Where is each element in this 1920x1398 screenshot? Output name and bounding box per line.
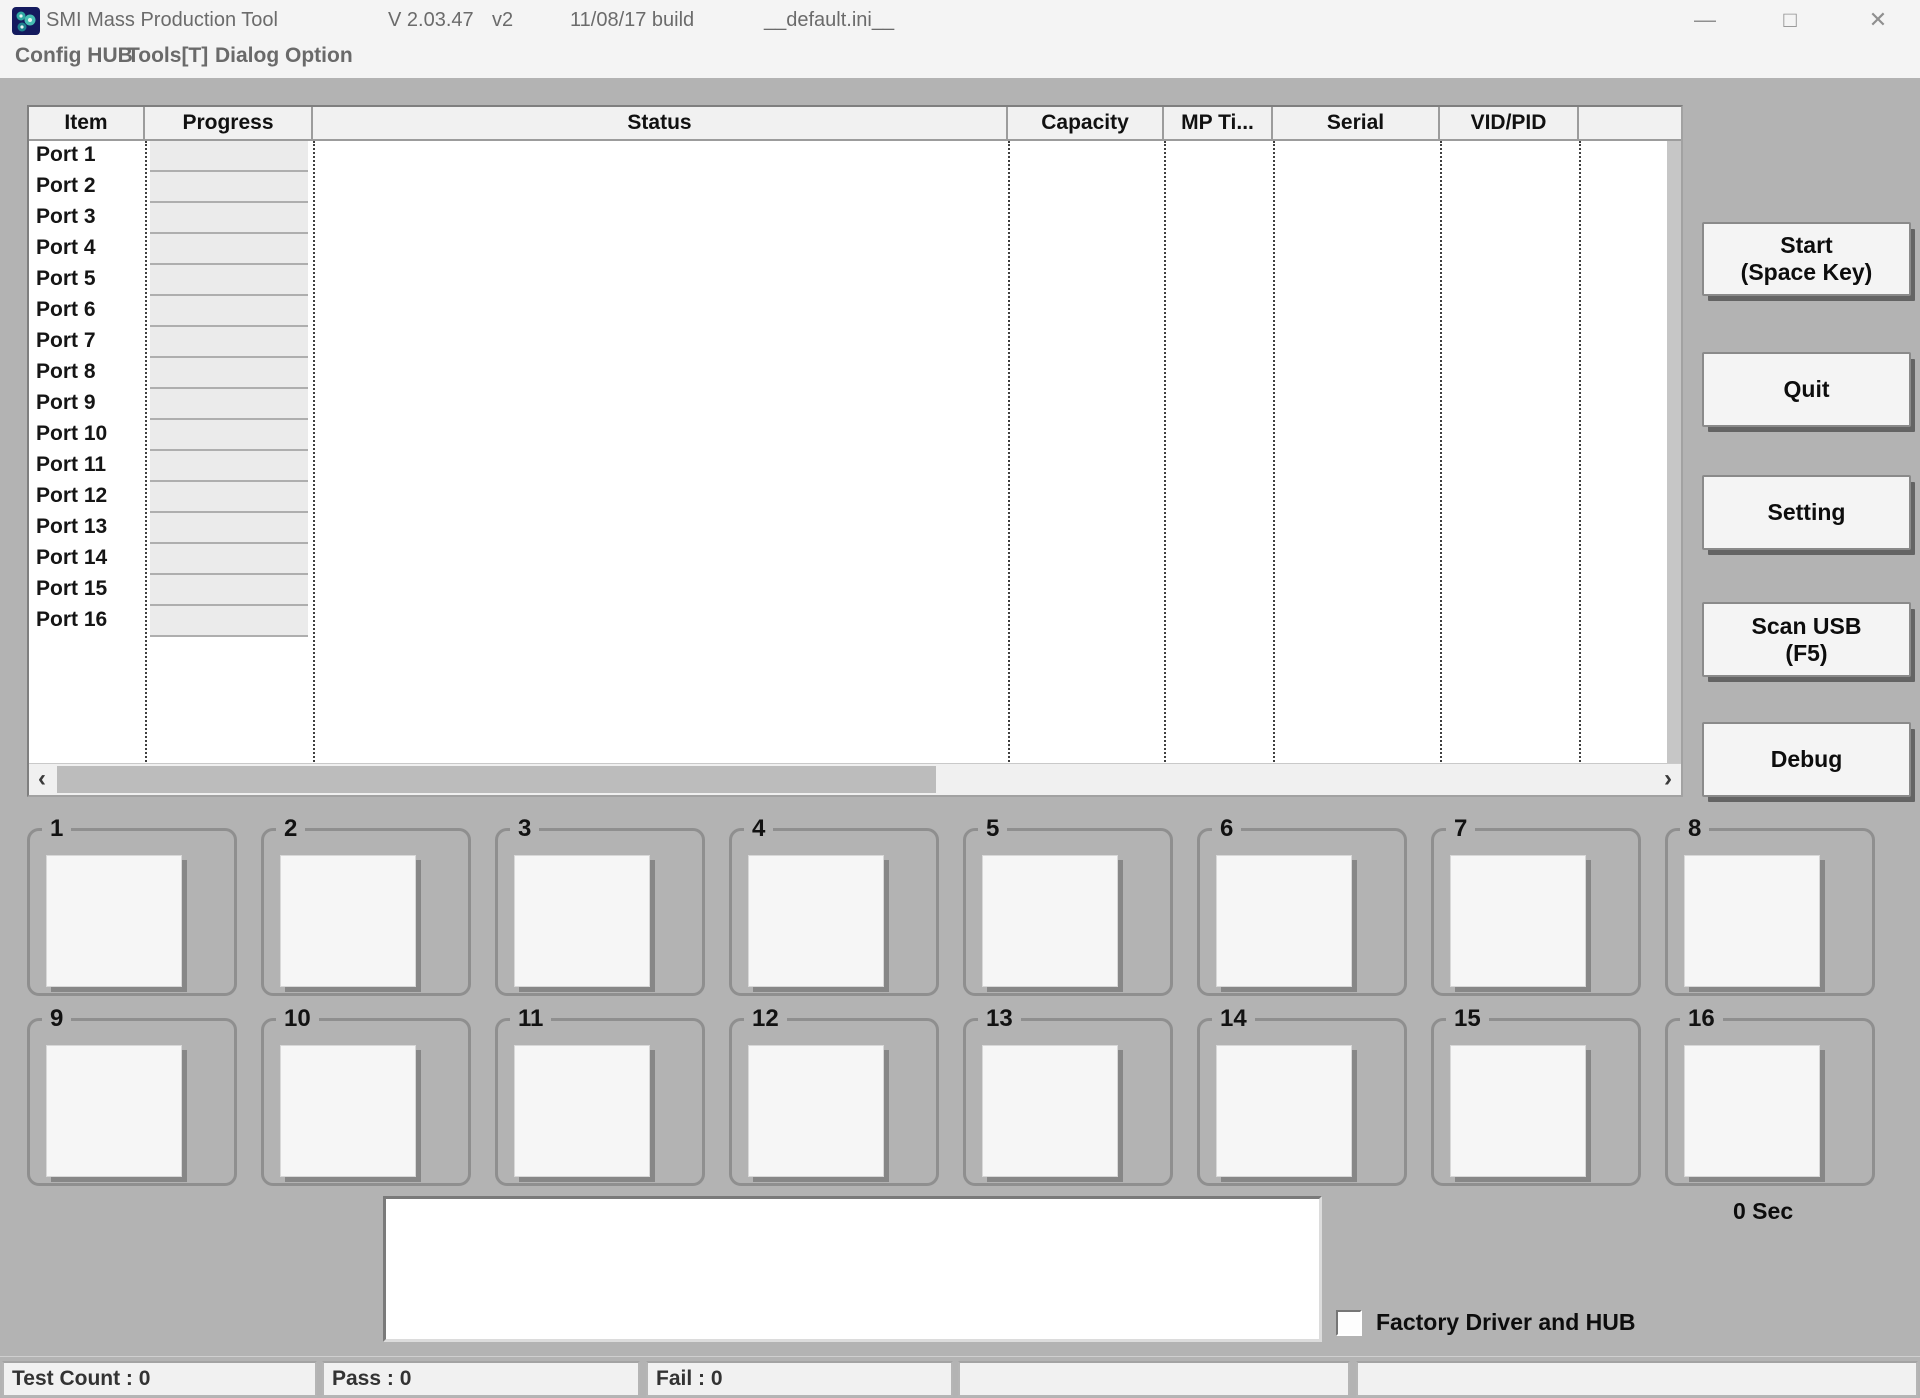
status-panel-5	[1356, 1361, 1918, 1397]
column-separator	[1579, 141, 1581, 765]
port-label: Port 7	[36, 329, 96, 353]
column-header-serial[interactable]: Serial	[1273, 107, 1440, 141]
port-label: Port 14	[36, 546, 107, 570]
scroll-left-icon: ‹	[38, 765, 46, 792]
app-version: V 2.03.47	[388, 9, 474, 32]
table-row-port-3[interactable]: Port 3	[29, 203, 1681, 234]
column-separator	[1273, 141, 1275, 765]
setting-button[interactable]: Setting	[1702, 475, 1911, 550]
port-label: Port 11	[36, 453, 106, 477]
port-status-table: Item Progress Status Capacity MP Ti... S…	[27, 105, 1683, 797]
port-status-square	[280, 1045, 416, 1177]
setting-button-label: Setting	[1768, 499, 1846, 526]
port-status-square	[1684, 1045, 1820, 1177]
menu-tools[interactable]: Tools[T]	[127, 44, 208, 68]
table-row-port-9[interactable]: Port 9	[29, 389, 1681, 420]
port-box-number: 13	[978, 1005, 1021, 1033]
column-separator	[1440, 141, 1442, 765]
column-separator	[313, 141, 315, 765]
progress-cell	[150, 420, 308, 451]
status-test-count: Test Count : 0	[2, 1361, 317, 1397]
factory-driver-checkbox[interactable]	[1336, 1310, 1362, 1336]
table-row-port-8[interactable]: Port 8	[29, 358, 1681, 389]
status-bar: Test Count : 0 Pass : 0 Fail : 0	[0, 1356, 1920, 1398]
port-box-number: 8	[1680, 815, 1709, 843]
scroll-right-button[interactable]: ›	[1655, 764, 1681, 795]
port-box-number: 10	[276, 1005, 319, 1033]
port-box-number: 1	[42, 815, 71, 843]
port-status-square	[1450, 1045, 1586, 1177]
table-row-port-11[interactable]: Port 11	[29, 451, 1681, 482]
window-chrome: SMI Mass Production Tool V 2.03.47 v2 11…	[0, 0, 1920, 78]
elapsed-time: 0 Sec	[1733, 1198, 1793, 1225]
table-row-port-14[interactable]: Port 14	[29, 544, 1681, 575]
port-box-7: 7	[1431, 828, 1641, 996]
port-status-square	[748, 1045, 884, 1177]
port-box-number: 11	[510, 1005, 551, 1033]
port-box-4: 4	[729, 828, 939, 996]
port-box-number: 5	[978, 815, 1007, 843]
window-title: SMI Mass Production Tool	[46, 9, 278, 32]
close-button[interactable]: ✕	[1856, 2, 1900, 38]
progress-cell	[150, 172, 308, 203]
table-row-port-10[interactable]: Port 10	[29, 420, 1681, 451]
menu-config-hub[interactable]: Config HUB	[15, 44, 133, 68]
quit-button[interactable]: Quit	[1702, 352, 1911, 427]
progress-cell	[150, 327, 308, 358]
progress-cell	[150, 482, 308, 513]
port-status-square	[1216, 1045, 1352, 1177]
port-box-number: 4	[744, 815, 773, 843]
port-box-6: 6	[1197, 828, 1407, 996]
port-box-1: 1	[27, 828, 237, 996]
column-header-mp-time[interactable]: MP Ti...	[1164, 107, 1273, 141]
column-separator	[145, 141, 147, 765]
start-button-label: Start	[1780, 232, 1832, 259]
app-icon	[12, 7, 40, 35]
port-status-square	[748, 855, 884, 987]
progress-cell	[150, 513, 308, 544]
port-box-number: 9	[42, 1005, 71, 1033]
port-label: Port 1	[36, 143, 96, 167]
port-box-9: 9	[27, 1018, 237, 1186]
column-header-status[interactable]: Status	[313, 107, 1008, 141]
port-label: Port 13	[36, 515, 107, 539]
port-box-5: 5	[963, 828, 1173, 996]
scrollbar-thumb[interactable]	[57, 766, 936, 793]
port-label: Port 8	[36, 360, 96, 384]
scroll-right-icon: ›	[1664, 765, 1672, 792]
loaded-ini-file: __default.ini__	[764, 9, 894, 32]
progress-cell	[150, 296, 308, 327]
horizontal-scrollbar[interactable]: ‹ ›	[29, 763, 1681, 795]
table-row-port-6[interactable]: Port 6	[29, 296, 1681, 327]
quit-button-label: Quit	[1784, 376, 1830, 403]
minimize-button[interactable]: —	[1683, 2, 1727, 38]
port-box-10: 10	[261, 1018, 471, 1186]
column-header-vid-pid[interactable]: VID/PID	[1440, 107, 1579, 141]
scan-usb-button-sublabel: (F5)	[1785, 640, 1827, 667]
debug-button[interactable]: Debug	[1702, 722, 1911, 797]
progress-cell	[150, 234, 308, 265]
progress-cell	[150, 606, 308, 637]
close-icon: ✕	[1869, 7, 1887, 32]
port-box-12: 12	[729, 1018, 939, 1186]
port-status-square	[1684, 855, 1820, 987]
port-status-square	[514, 855, 650, 987]
port-status-square	[46, 1045, 182, 1177]
port-box-number: 15	[1446, 1005, 1489, 1033]
port-box-14: 14	[1197, 1018, 1407, 1186]
port-box-number: 16	[1680, 1005, 1723, 1033]
port-status-square	[514, 1045, 650, 1177]
scroll-left-button[interactable]: ‹	[29, 764, 55, 795]
progress-cell	[150, 141, 308, 172]
progress-cell	[150, 389, 308, 420]
port-box-number: 7	[1446, 815, 1475, 843]
table-row-port-5[interactable]: Port 5	[29, 265, 1681, 296]
port-label: Port 2	[36, 174, 96, 198]
port-label: Port 4	[36, 236, 96, 260]
column-separator	[1164, 141, 1166, 765]
message-log-box	[383, 1196, 1322, 1342]
status-panel-4	[958, 1361, 1350, 1397]
menu-dialog-option[interactable]: Dialog Option	[215, 44, 353, 68]
column-separator	[1008, 141, 1010, 765]
port-box-11: 11	[495, 1018, 705, 1186]
port-status-square	[982, 855, 1118, 987]
port-label: Port 15	[36, 577, 107, 601]
port-box-8: 8	[1665, 828, 1875, 996]
scan-usb-button-label: Scan USB	[1752, 613, 1862, 640]
status-fail-count: Fail : 0	[646, 1361, 953, 1397]
status-pass-count: Pass : 0	[322, 1361, 640, 1397]
port-box-15: 15	[1431, 1018, 1641, 1186]
column-header-capacity[interactable]: Capacity	[1008, 107, 1164, 141]
progress-cell	[150, 203, 308, 234]
progress-cell	[150, 451, 308, 482]
table-row-port-12[interactable]: Port 12	[29, 482, 1681, 513]
port-status-square	[46, 855, 182, 987]
start-button[interactable]: Start (Space Key)	[1702, 222, 1911, 296]
port-box-number: 6	[1212, 815, 1241, 843]
port-box-2: 2	[261, 828, 471, 996]
app-build: 11/08/17 build	[570, 9, 694, 32]
table-row-port-16[interactable]: Port 16	[29, 606, 1681, 637]
table-row-port-15[interactable]: Port 15	[29, 575, 1681, 606]
maximize-icon: □	[1783, 7, 1796, 32]
port-box-number: 3	[510, 815, 539, 843]
port-box-number: 2	[276, 815, 305, 843]
port-label: Port 5	[36, 267, 96, 291]
progress-cell	[150, 544, 308, 575]
port-status-square	[982, 1045, 1118, 1177]
progress-cell	[150, 358, 308, 389]
table-header-row: Item Progress Status Capacity MP Ti... S…	[29, 107, 1681, 141]
table-row-port-1[interactable]: Port 1	[29, 141, 1681, 172]
maximize-button[interactable]: □	[1768, 2, 1812, 38]
scan-usb-button[interactable]: Scan USB (F5)	[1702, 602, 1911, 677]
port-label: Port 12	[36, 484, 107, 508]
port-label: Port 10	[36, 422, 107, 446]
port-status-square	[1450, 855, 1586, 987]
column-header-item[interactable]: Item	[29, 107, 145, 141]
start-button-sublabel: (Space Key)	[1741, 259, 1873, 286]
port-box-13: 13	[963, 1018, 1173, 1186]
port-box-number: 12	[744, 1005, 787, 1033]
factory-driver-checkbox-label[interactable]: Factory Driver and HUB	[1376, 1309, 1635, 1336]
port-status-square	[1216, 855, 1352, 987]
port-box-16: 16	[1665, 1018, 1875, 1186]
port-label: Port 3	[36, 205, 96, 229]
progress-cell	[150, 575, 308, 606]
column-header-progress[interactable]: Progress	[145, 107, 313, 141]
progress-cell	[150, 265, 308, 296]
app-version-tag: v2	[492, 9, 513, 32]
port-label: Port 9	[36, 391, 96, 415]
port-box-3: 3	[495, 828, 705, 996]
table-row-port-13[interactable]: Port 13	[29, 513, 1681, 544]
port-status-square	[280, 855, 416, 987]
port-label: Port 16	[36, 608, 107, 632]
table-row-port-2[interactable]: Port 2	[29, 172, 1681, 203]
port-box-number: 14	[1212, 1005, 1255, 1033]
debug-button-label: Debug	[1771, 746, 1843, 773]
vertical-scrollbar[interactable]	[1667, 141, 1681, 765]
port-label: Port 6	[36, 298, 96, 322]
table-row-port-7[interactable]: Port 7	[29, 327, 1681, 358]
table-body: Port 1 Port 2 Port 3 Port 4 Port 5 Port …	[29, 141, 1681, 637]
app-window: SMI Mass Production Tool V 2.03.47 v2 11…	[0, 0, 1920, 1398]
table-row-port-4[interactable]: Port 4	[29, 234, 1681, 265]
minimize-icon: —	[1694, 7, 1716, 32]
column-header-blank[interactable]	[1579, 107, 1681, 141]
